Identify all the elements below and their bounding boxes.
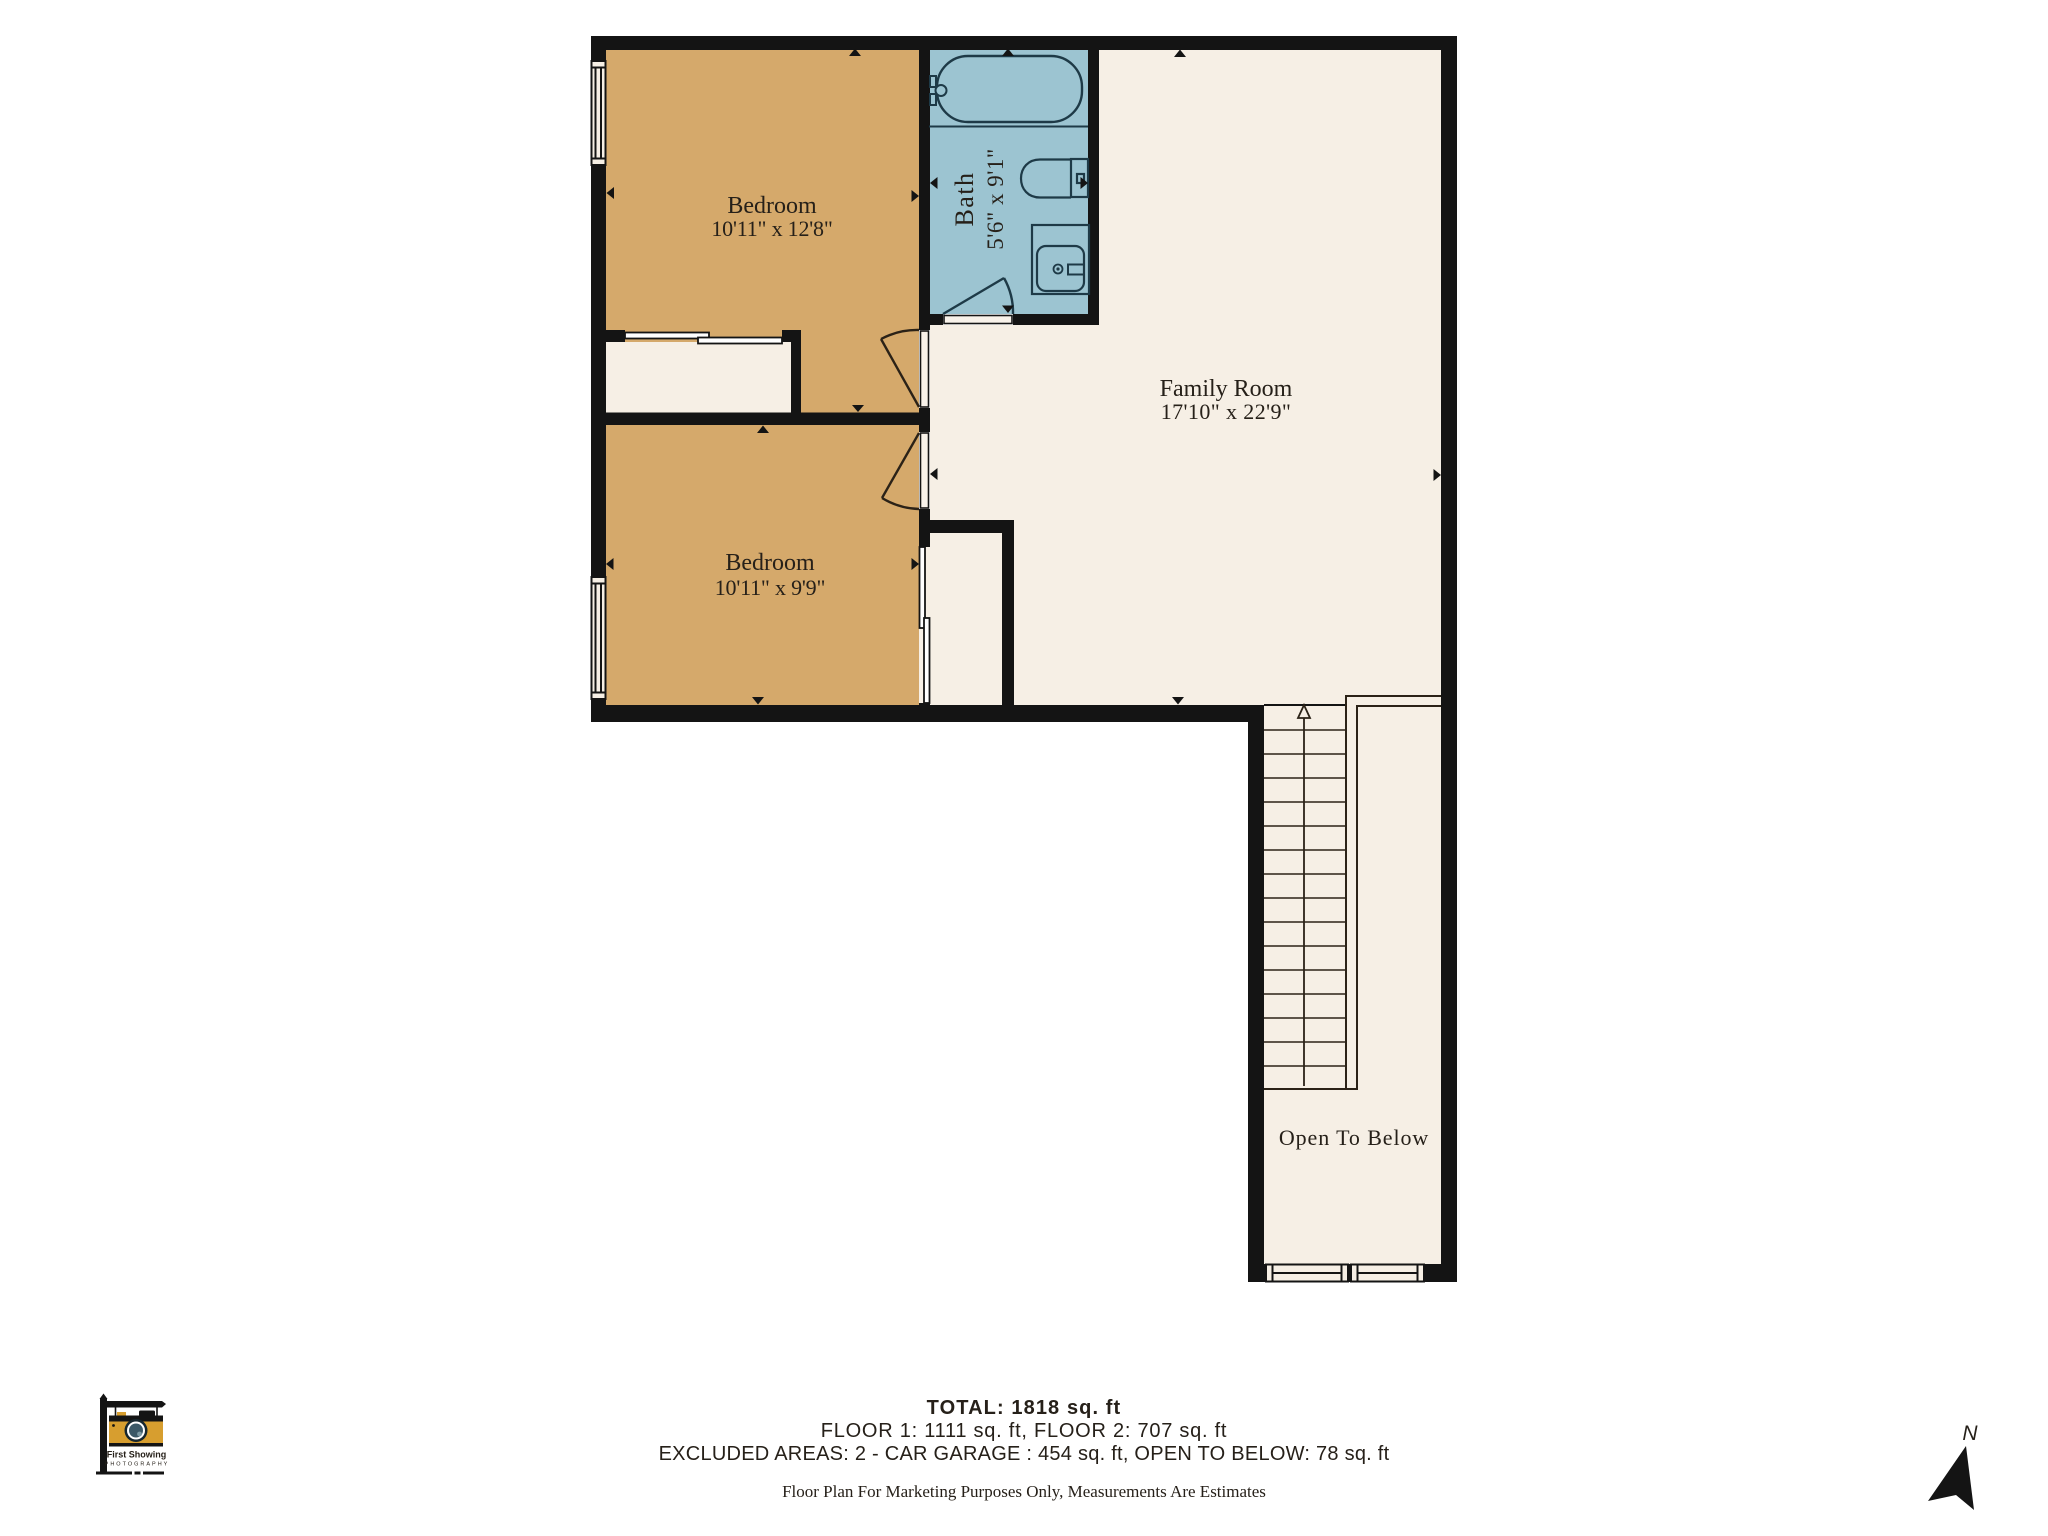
svg-text:PHOTOGRAPHY: PHOTOGRAPHY bbox=[105, 1462, 170, 1468]
svg-text:Bedroom: Bedroom bbox=[725, 550, 815, 576]
svg-text:N: N bbox=[1962, 1422, 1978, 1445]
svg-text:Open To Below: Open To Below bbox=[1279, 1125, 1429, 1150]
svg-text:10'11" x 9'9": 10'11" x 9'9" bbox=[715, 575, 825, 600]
svg-text:EXCLUDED AREAS: 2 - CAR GARAGE: EXCLUDED AREAS: 2 - CAR GARAGE : 454 sq.… bbox=[659, 1443, 1390, 1465]
svg-text:17'10" x 22'9": 17'10" x 22'9" bbox=[1161, 399, 1292, 424]
svg-text:5'6" x 9'1": 5'6" x 9'1" bbox=[983, 148, 1008, 250]
svg-text:TOTAL: 1818 sq. ft: TOTAL: 1818 sq. ft bbox=[927, 1397, 1122, 1419]
svg-text:First Showing: First Showing bbox=[107, 1450, 167, 1460]
svg-text:10'11" x 12'8": 10'11" x 12'8" bbox=[711, 216, 832, 241]
svg-text:Bath: Bath bbox=[950, 171, 979, 226]
svg-text:FLOOR 1: 1111 sq. ft, FLOOR 2:: FLOOR 1: 1111 sq. ft, FLOOR 2: 707 sq. f… bbox=[821, 1420, 1227, 1442]
svg-text:Floor Plan For Marketing Purpo: Floor Plan For Marketing Purposes Only, … bbox=[782, 1482, 1266, 1501]
